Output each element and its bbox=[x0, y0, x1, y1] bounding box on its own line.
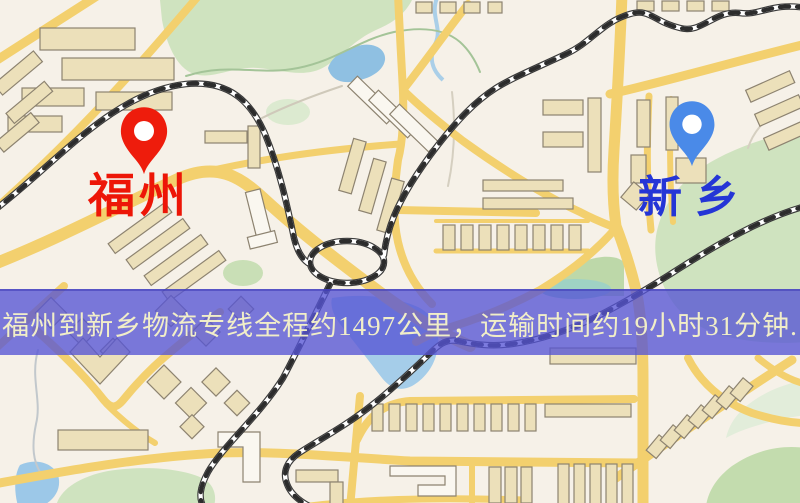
origin-label: 福州 bbox=[88, 174, 190, 221]
route-map-screenshot: 福州 新乡 福州到新乡物流专线全程约1497公里，运输时间约19小时31分钟. bbox=[0, 0, 800, 503]
route-info-banner: 福州到新乡物流专线全程约1497公里，运输时间约19小时31分钟. bbox=[0, 289, 800, 355]
city-map-background bbox=[0, 0, 800, 503]
origin-pin-icon[interactable] bbox=[118, 106, 170, 176]
destination-label: 新乡 bbox=[638, 176, 752, 220]
destination-pin-icon[interactable] bbox=[667, 100, 717, 168]
route-info-text: 福州到新乡物流专线全程约1497公里，运输时间约19小时31分钟. bbox=[2, 304, 798, 343]
